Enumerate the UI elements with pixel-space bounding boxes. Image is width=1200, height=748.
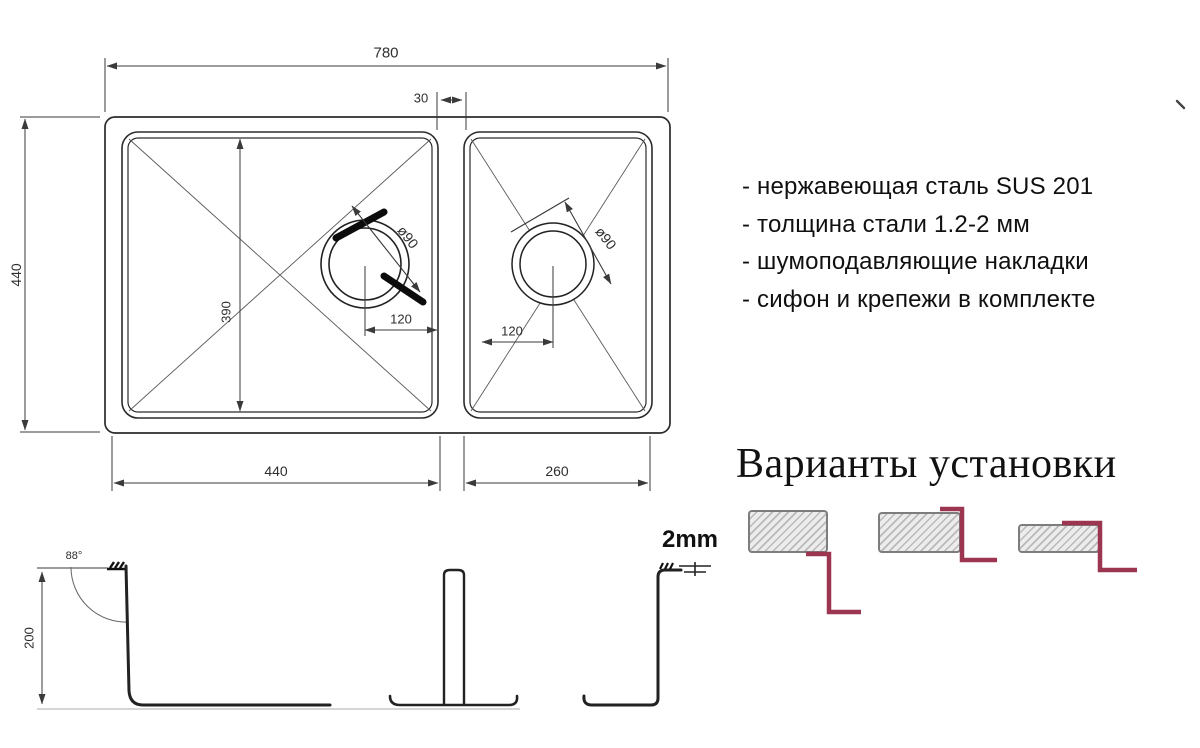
spec-item-steel-thickness: - толщина стали 1.2-2 мм bbox=[742, 206, 1096, 244]
countertop-cross-section-3 bbox=[1018, 524, 1100, 553]
spec-item-steel-grade: - нержавеющая сталь SUS 201 bbox=[742, 168, 1096, 206]
plan-view-drawing bbox=[20, 58, 670, 491]
sink-spec-sheet: 780 30 440 390 ø90 ø90 120 120 440 260 2… bbox=[0, 0, 1200, 748]
dim-left-drain-diameter-label: ø90 bbox=[394, 223, 421, 252]
dim-wall-angle-label: 88° bbox=[66, 550, 83, 562]
dim-overall-width-label: 780 bbox=[373, 45, 398, 62]
left-bowl-outer-edge bbox=[122, 132, 438, 418]
technical-drawing-canvas bbox=[0, 0, 1200, 748]
right-wall-profile bbox=[584, 570, 681, 705]
left-rim-section-hatch bbox=[107, 562, 127, 569]
countertop-cross-section-1 bbox=[748, 510, 828, 553]
countertop-cross-section-2 bbox=[878, 512, 961, 553]
spec-list: - нержавеющая сталь SUS 201 - толщина ст… bbox=[742, 168, 1096, 318]
spec-item-included-parts: - сифон и крепежи в комплекте bbox=[742, 281, 1096, 319]
right-bowl-diagonals bbox=[471, 139, 645, 411]
overall-depth-440-dimension bbox=[20, 117, 100, 432]
right-drain-inner-circle bbox=[520, 231, 586, 297]
overall-width-780-dimension bbox=[105, 58, 668, 112]
mount-option-1-sink-edge bbox=[806, 554, 861, 612]
right-bowl-outer-edge bbox=[464, 132, 652, 418]
left-drain bbox=[321, 206, 437, 336]
divider-30-dimension bbox=[437, 92, 466, 130]
dim-divider-label: 30 bbox=[414, 91, 428, 106]
wall-angle-arc bbox=[71, 567, 129, 622]
dim-left-drain-offset-label: 120 bbox=[390, 312, 412, 327]
dim-left-bowl-width-label: 440 bbox=[264, 463, 287, 479]
left-drain-bold-tangent-lower bbox=[384, 276, 423, 302]
left-bowl-inner-edge bbox=[128, 138, 432, 412]
dim-right-bowl-width-label: 260 bbox=[545, 463, 568, 479]
spec-item-noise-pads: - шумоподавляющие накладки bbox=[742, 243, 1096, 281]
right-rim-section-hatch bbox=[660, 563, 673, 569]
left-wall-profile bbox=[126, 566, 330, 705]
right-drain-tangent-line bbox=[511, 198, 569, 232]
dim-right-drain-offset-label: 120 bbox=[501, 324, 523, 339]
divider-ridge-profile bbox=[444, 570, 464, 705]
left-bowl-diagonals bbox=[129, 139, 431, 411]
dim-depth-200-label: 200 bbox=[22, 627, 37, 649]
right-drain-outer-circle bbox=[512, 223, 594, 305]
dim-right-drain-diameter-label: ø90 bbox=[592, 224, 619, 253]
dim-overall-depth-label: 440 bbox=[8, 263, 24, 286]
depth-200-dimension bbox=[37, 568, 108, 704]
rim-thickness-callout bbox=[679, 562, 711, 576]
side-view-drawing bbox=[37, 562, 711, 709]
right-bowl-inner-edge bbox=[470, 138, 646, 412]
dim-bowl-depth-label: 390 bbox=[219, 301, 234, 323]
left-drain-bold-tangent-upper bbox=[336, 212, 384, 238]
stray-print-mark bbox=[1177, 101, 1184, 108]
sink-outer-rim bbox=[105, 117, 670, 433]
left-drain-inner-circle bbox=[329, 228, 401, 300]
dim-rim-thickness-label: 2mm bbox=[662, 526, 718, 554]
installation-options-heading: Варианты установки bbox=[736, 440, 1117, 488]
bowl-width-dimensions bbox=[112, 436, 650, 491]
middle-bottom-profile bbox=[390, 696, 517, 705]
